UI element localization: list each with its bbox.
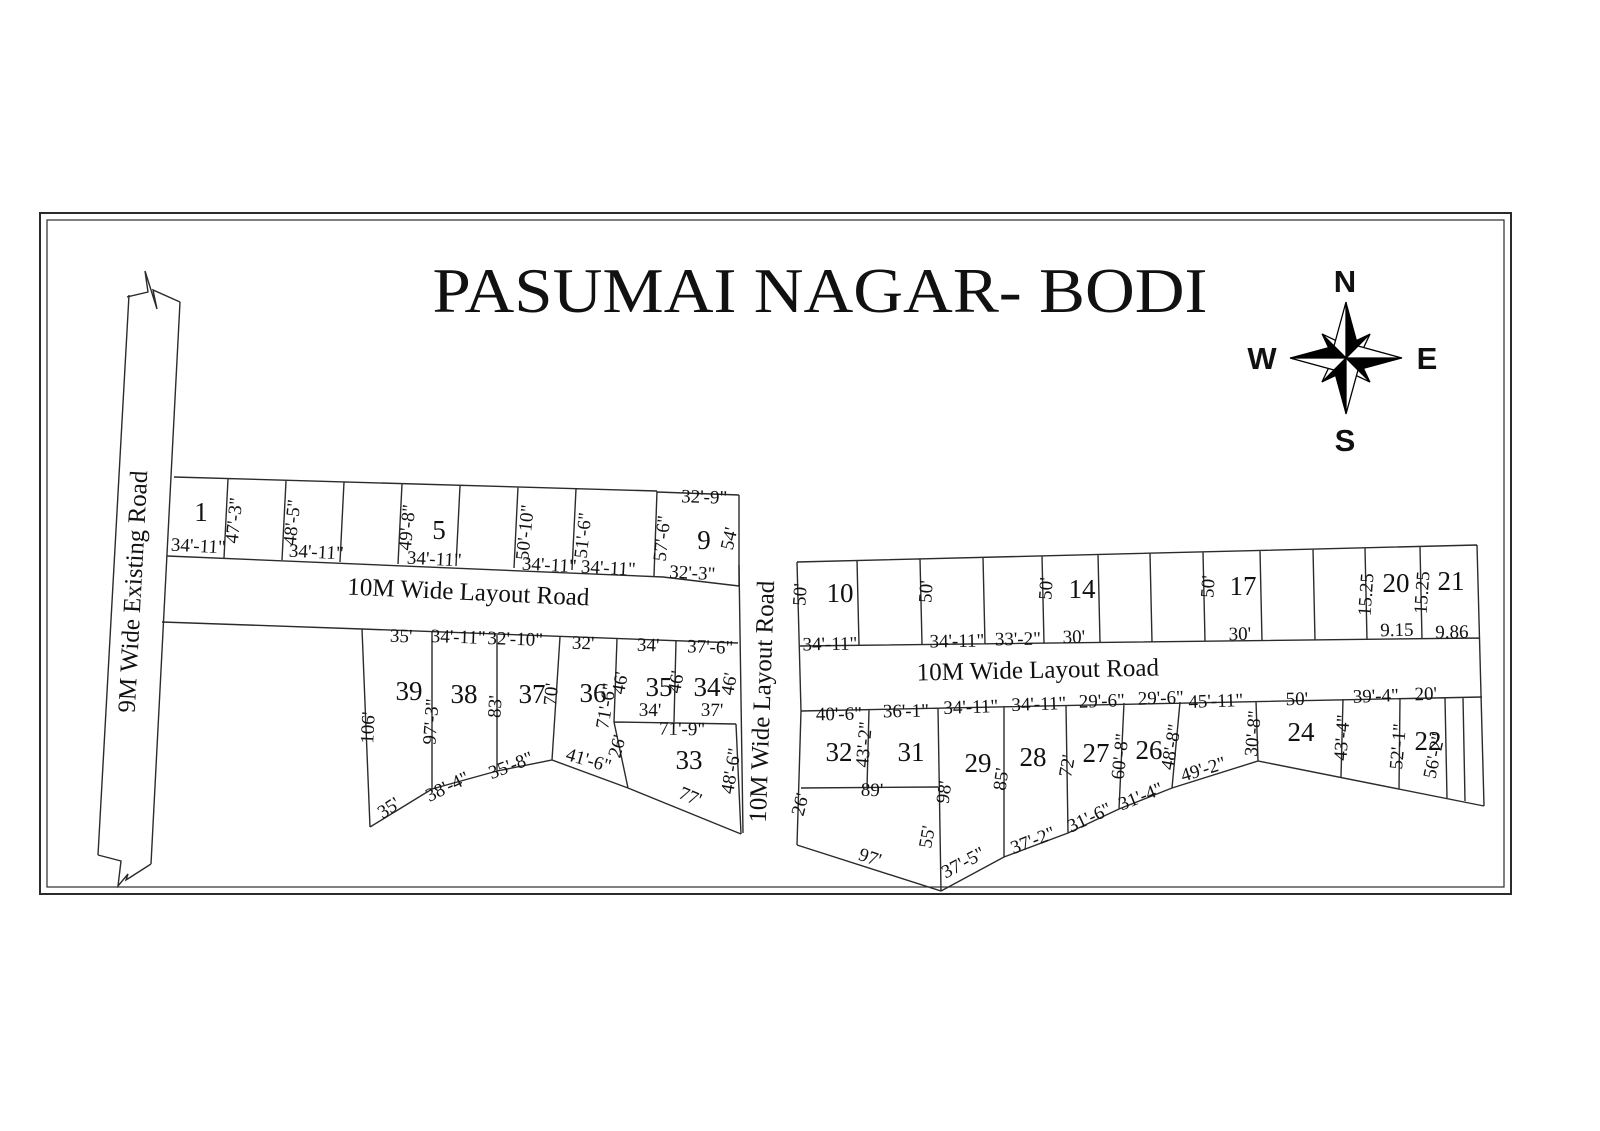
dimension-label-30: 32' [572, 633, 595, 655]
dimension-label-2: 49'-8" [395, 503, 421, 551]
plot-number-1: 1 [194, 497, 208, 527]
plot-number-20: 20 [1383, 568, 1410, 598]
plot-number-27: 27 [1083, 738, 1110, 768]
dimension-label-45: 37' [701, 700, 724, 721]
dimension-label-24: 30' [1229, 624, 1252, 645]
dimension-label-27: 35' [390, 626, 413, 648]
dimension-label-72: 26' [788, 791, 814, 818]
dimension-label-14: 50' [789, 583, 812, 607]
dimension-label-66: 60'-8" [1108, 732, 1134, 780]
dimension-label-12: 34'-11" [580, 557, 636, 581]
dimension-label-40: 46' [717, 671, 742, 697]
plot-number-34: 34 [694, 672, 722, 702]
dimension-label-4: 51'-6" [571, 511, 597, 559]
dimension-label-1: 48'-5" [280, 498, 306, 546]
plot-number-5: 5 [432, 515, 446, 545]
compass-star-icon [1290, 302, 1402, 414]
dimension-label-63: 55' [915, 824, 940, 850]
dimension-label-61: 43'-2" [852, 721, 877, 769]
dimension-label-18: 15.25 [1355, 573, 1379, 617]
dimension-label-39: 46' [664, 669, 689, 695]
dimension-label-79: 49'-2" [1178, 753, 1228, 787]
page-title: PASUMAI NAGAR- BODI [433, 255, 1208, 326]
dimension-label-11: 34'-11" [521, 554, 577, 578]
road-label-0: 9M Wide Existing Road [114, 469, 154, 713]
dimension-label-58: 50' [1286, 689, 1309, 710]
compass-rose [1290, 302, 1402, 414]
dimension-label-21: 34'-11" [929, 631, 984, 653]
dimension-label-25: 9.15 [1380, 620, 1414, 642]
dimension-label-31: 34' [637, 635, 660, 657]
compass-south-label: S [1335, 423, 1356, 458]
dimension-label-47: 38'-4" [422, 768, 473, 807]
dimension-label-19: 15.25 [1411, 571, 1435, 615]
dimension-label-78: 31'-4" [1116, 779, 1167, 816]
compass-west-label: W [1247, 341, 1277, 376]
dimension-label-43: 34' [639, 700, 662, 721]
dimension-label-60: 20' [1414, 684, 1437, 706]
dimension-label-29: 32'-10" [487, 628, 543, 651]
compass-north-label: N [1334, 264, 1356, 299]
dimension-label-68: 30'-8" [1241, 710, 1266, 758]
dimension-label-8: 34'-11" [170, 535, 226, 559]
dimension-label-20: 34'-11" [802, 634, 857, 656]
road-label-3: 10M Wide Layout Road [916, 654, 1159, 686]
dimension-label-33: 106' [357, 711, 380, 744]
dimension-label-73: 89' [861, 780, 884, 801]
dimension-label-67: 48'-8" [1157, 723, 1186, 772]
dimension-label-55: 29'-6" [1078, 690, 1125, 713]
dimension-label-69: 43'-4" [1330, 714, 1354, 761]
dimension-label-35: 83' [484, 695, 507, 719]
dimension-label-23: 30' [1063, 627, 1086, 648]
dimension-label-57: 45'-11" [1188, 690, 1244, 713]
dimension-label-38: 46' [608, 670, 633, 696]
dimension-label-62: 98' [933, 780, 957, 805]
dimension-label-13: 32'-3" [669, 562, 716, 585]
dimension-label-59: 39'-4" [1352, 685, 1399, 708]
dimension-label-50: 77' [676, 783, 705, 811]
compass-east-label: E [1417, 341, 1438, 376]
dimension-label-44: 71'-9" [659, 719, 705, 741]
plot-number-33: 33 [676, 745, 703, 775]
plot-number-32: 32 [826, 737, 853, 767]
plot-number-14: 14 [1069, 574, 1097, 604]
dimension-label-42: 48'-6" [717, 747, 746, 796]
dimension-label-70: 52'-1" [1386, 723, 1411, 771]
dimension-label-5: 57'-6" [650, 514, 676, 562]
dimension-label-36: 70' [540, 682, 563, 707]
plot-number-29: 29 [965, 748, 992, 778]
dimension-label-64: 85' [990, 767, 1014, 792]
dimension-label-26: 9.86 [1435, 622, 1469, 644]
plot-number-31: 31 [898, 737, 925, 767]
dimension-label-53: 34'-11" [943, 696, 999, 719]
dimension-label-16: 50' [1035, 577, 1058, 601]
plot-number-17: 17 [1230, 571, 1257, 601]
dimension-label-56: 29'-6" [1137, 687, 1184, 710]
dimension-label-48: 35'-8" [486, 748, 536, 784]
dimension-label-65: 72' [1055, 753, 1080, 779]
road-label-2: 10M Wide Layout Road [745, 580, 780, 824]
dimension-label-32: 37'-6" [687, 636, 734, 659]
dimension-label-77: 31'-6" [1064, 799, 1115, 837]
dimension-label-3: 50'-10" [512, 504, 539, 561]
site-plan-page: PASUMAI NAGAR- BODI N E S W 9M Wide Exi [0, 0, 1600, 1131]
generated-labels: 9M Wide Existing Road10M Wide Layout Roa… [114, 469, 1469, 883]
dimension-label-7: 32'-9" [681, 486, 728, 509]
dimension-label-9: 34'-11" [288, 541, 344, 565]
site-plan-svg: PASUMAI NAGAR- BODI N E S W 9M Wide Exi [0, 0, 1600, 1131]
plot-number-9: 9 [697, 525, 711, 555]
dimension-label-46: 35' [374, 793, 404, 823]
plot-number-21: 21 [1438, 566, 1465, 596]
dimension-label-28: 34'-11" [430, 626, 486, 649]
dimension-label-74: 97' [856, 844, 884, 871]
plot-number-39: 39 [396, 676, 423, 706]
plot-number-24: 24 [1288, 717, 1316, 747]
dimension-label-54: 34'-11" [1011, 693, 1067, 716]
dimension-label-10: 34'-11" [406, 548, 462, 572]
plot-number-38: 38 [451, 679, 478, 709]
road-label-1: 10M Wide Layout Road [347, 574, 591, 612]
dimension-label-15: 50' [915, 580, 938, 604]
dimension-label-75: 37'-5" [938, 843, 988, 883]
dimension-label-34: 97'-3" [419, 698, 443, 745]
plot-number-10: 10 [827, 578, 854, 608]
dimension-label-22: 33'-2" [995, 629, 1041, 651]
plot-number-28: 28 [1020, 742, 1047, 772]
dimension-label-17: 50' [1197, 575, 1220, 599]
dimension-label-52: 36'-1" [883, 701, 929, 723]
dimension-label-76: 37'-2" [1008, 823, 1058, 859]
